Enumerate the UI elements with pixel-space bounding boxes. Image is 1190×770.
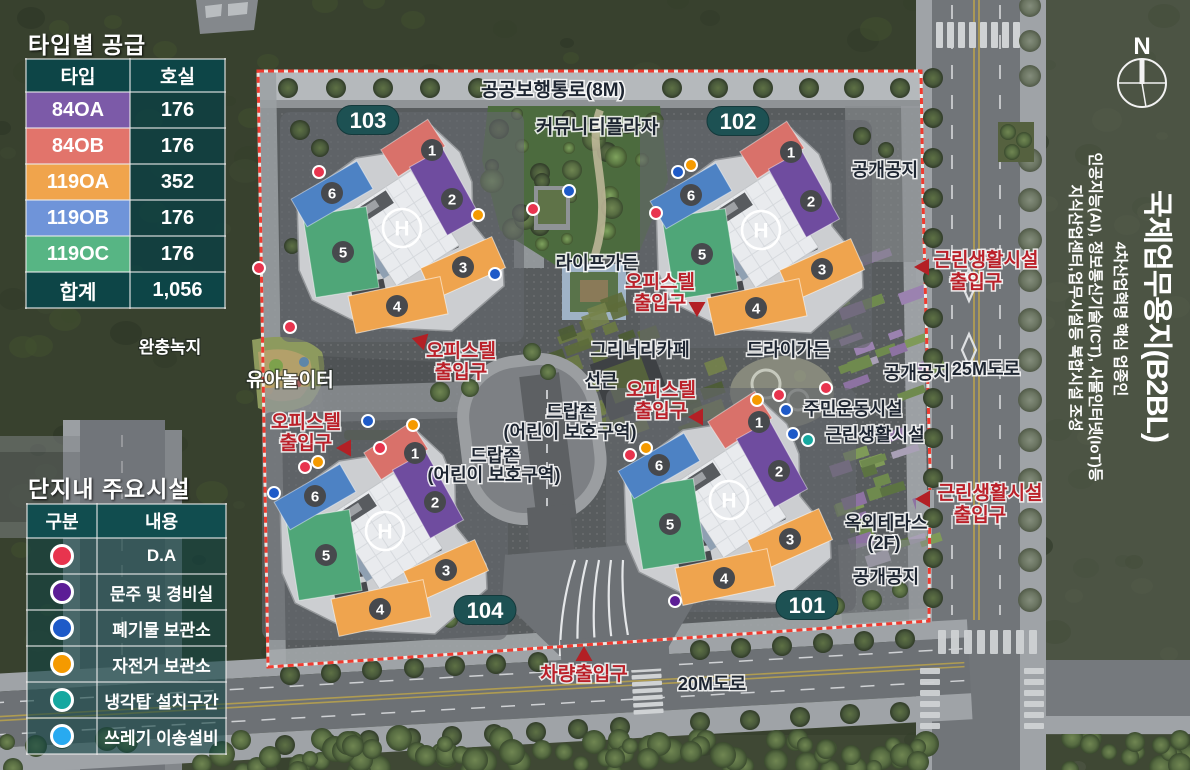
svg-text:(2F): (2F) [868, 533, 901, 553]
svg-text:주민운동시설: 주민운동시설 [803, 399, 902, 419]
svg-text:차량출입구: 차량출입구 [540, 663, 627, 685]
svg-text:지식산업센터,업무시설등 복합시설 조성: 지식산업센터,업무시설등 복합시설 조성 [1067, 184, 1085, 431]
svg-text:오피스텔: 오피스텔 [271, 411, 341, 433]
svg-text:20M도로: 20M도로 [678, 674, 746, 694]
svg-text:인공지능(AI), 정보통신기술(ICT), 사물인터넷(I: 인공지능(AI), 정보통신기술(ICT), 사물인터넷(IoT)등 [1087, 152, 1105, 481]
svg-text:(어린이 보호구역): (어린이 보호구역) [504, 422, 637, 442]
svg-text:103: 103 [350, 108, 387, 133]
svg-text:오피스텔: 오피스텔 [426, 340, 496, 362]
svg-text:101: 101 [789, 593, 826, 618]
svg-text:그리너리카페: 그리너리카페 [590, 340, 689, 360]
svg-text:출입구: 출입구 [634, 292, 686, 314]
svg-text:출입구: 출입구 [435, 361, 487, 383]
svg-text:선큰: 선큰 [584, 371, 617, 391]
svg-text:드랍존: 드랍존 [546, 402, 596, 422]
svg-text:출입구: 출입구 [635, 400, 687, 422]
svg-text:공개공지: 공개공지 [852, 160, 918, 180]
svg-text:102: 102 [720, 109, 757, 134]
svg-text:완충녹지: 완충녹지 [139, 338, 202, 357]
svg-text:드랍존: 드랍존 [470, 446, 520, 466]
svg-text:국제업무용지(B2BL): 국제업무용지(B2BL) [1140, 190, 1173, 442]
svg-text:출입구: 출입구 [280, 432, 332, 454]
svg-text:커뮤니티플라자: 커뮤니티플라자 [536, 116, 659, 138]
svg-text:근린생활시설: 근린생활시설 [938, 482, 1043, 504]
svg-text:공공보행통로(8M): 공공보행통로(8M) [481, 79, 625, 101]
svg-text:출입구: 출입구 [954, 504, 1006, 526]
svg-text:오피스텔: 오피스텔 [626, 379, 696, 401]
svg-text:라이프가든: 라이프가든 [556, 253, 639, 273]
svg-text:옥외테라스: 옥외테라스 [845, 513, 928, 533]
svg-text:(어린이 보호구역): (어린이 보호구역) [428, 465, 561, 485]
svg-text:4차산업혁명 핵심 업종인: 4차산업혁명 핵심 업종인 [1112, 242, 1130, 397]
svg-text:유아놀이터: 유아놀이터 [246, 369, 333, 391]
svg-text:25M도로: 25M도로 [952, 359, 1020, 379]
svg-text:드라이가든: 드라이가든 [747, 340, 830, 360]
svg-text:근린생활시설: 근린생활시설 [825, 425, 924, 445]
svg-text:출입구: 출입구 [950, 271, 1002, 293]
svg-text:104: 104 [467, 598, 504, 623]
svg-text:오피스텔: 오피스텔 [625, 271, 695, 293]
svg-text:근린생활시설: 근린생활시설 [934, 249, 1039, 271]
svg-text:공개공지: 공개공지 [853, 567, 919, 587]
svg-text:공개공지: 공개공지 [884, 363, 950, 383]
svg-text:N: N [1133, 33, 1150, 60]
